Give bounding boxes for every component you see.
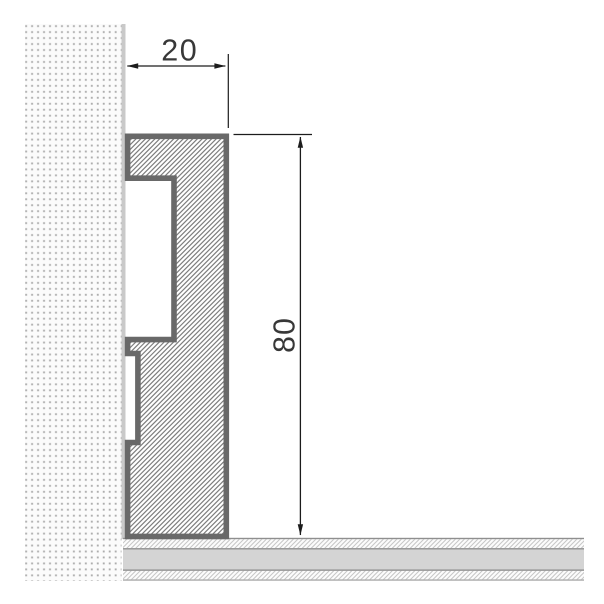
svg-text:20: 20 xyxy=(161,34,197,68)
svg-text:80: 80 xyxy=(268,318,302,353)
